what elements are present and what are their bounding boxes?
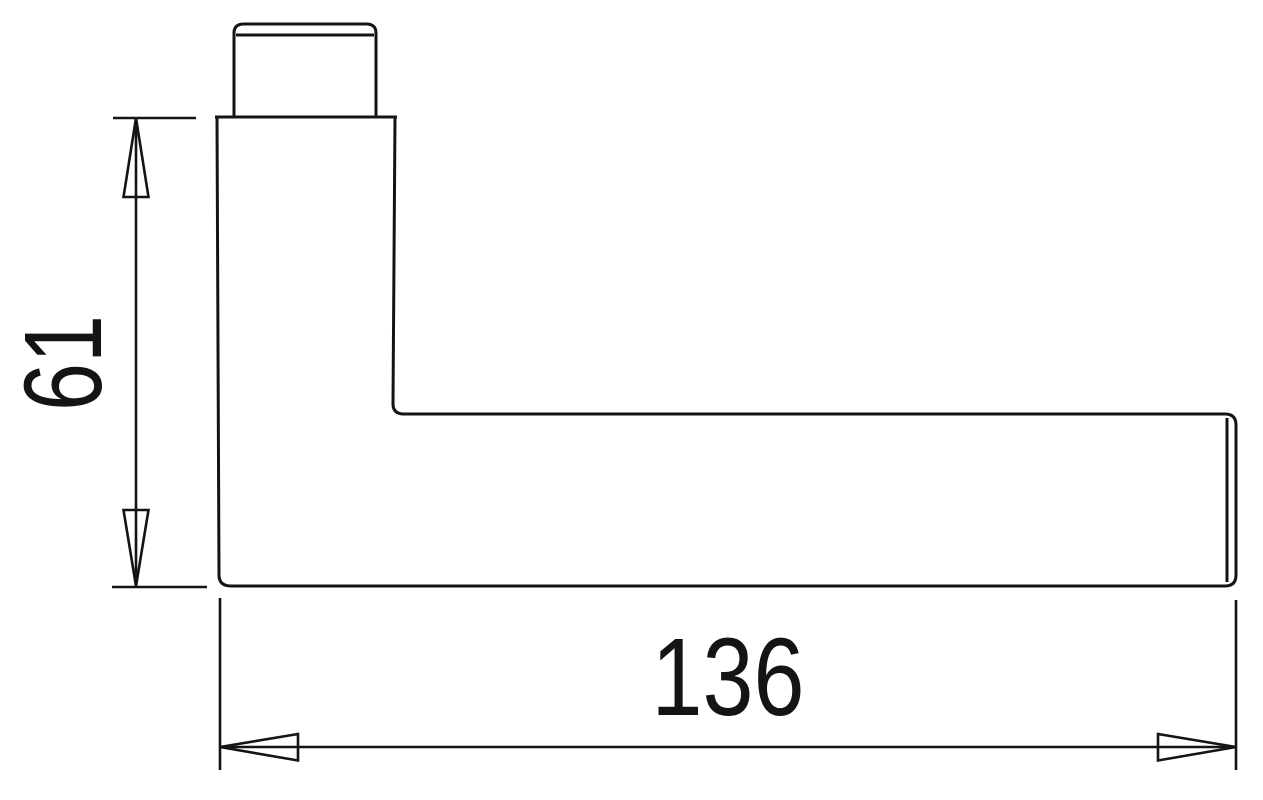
technical-drawing-canvas: 61 136	[0, 0, 1263, 800]
horizontal-dimension: 136	[220, 598, 1236, 770]
handle-stub-outline	[234, 24, 376, 117]
vertical-dim-label: 61	[2, 315, 125, 411]
horizontal-dim-label: 136	[652, 616, 805, 739]
handle-profile	[215, 24, 1236, 586]
vertical-dimension: 61	[2, 118, 207, 587]
door-handle-dimension-drawing: 61 136	[0, 0, 1263, 800]
handle-body-outline	[217, 117, 1236, 586]
